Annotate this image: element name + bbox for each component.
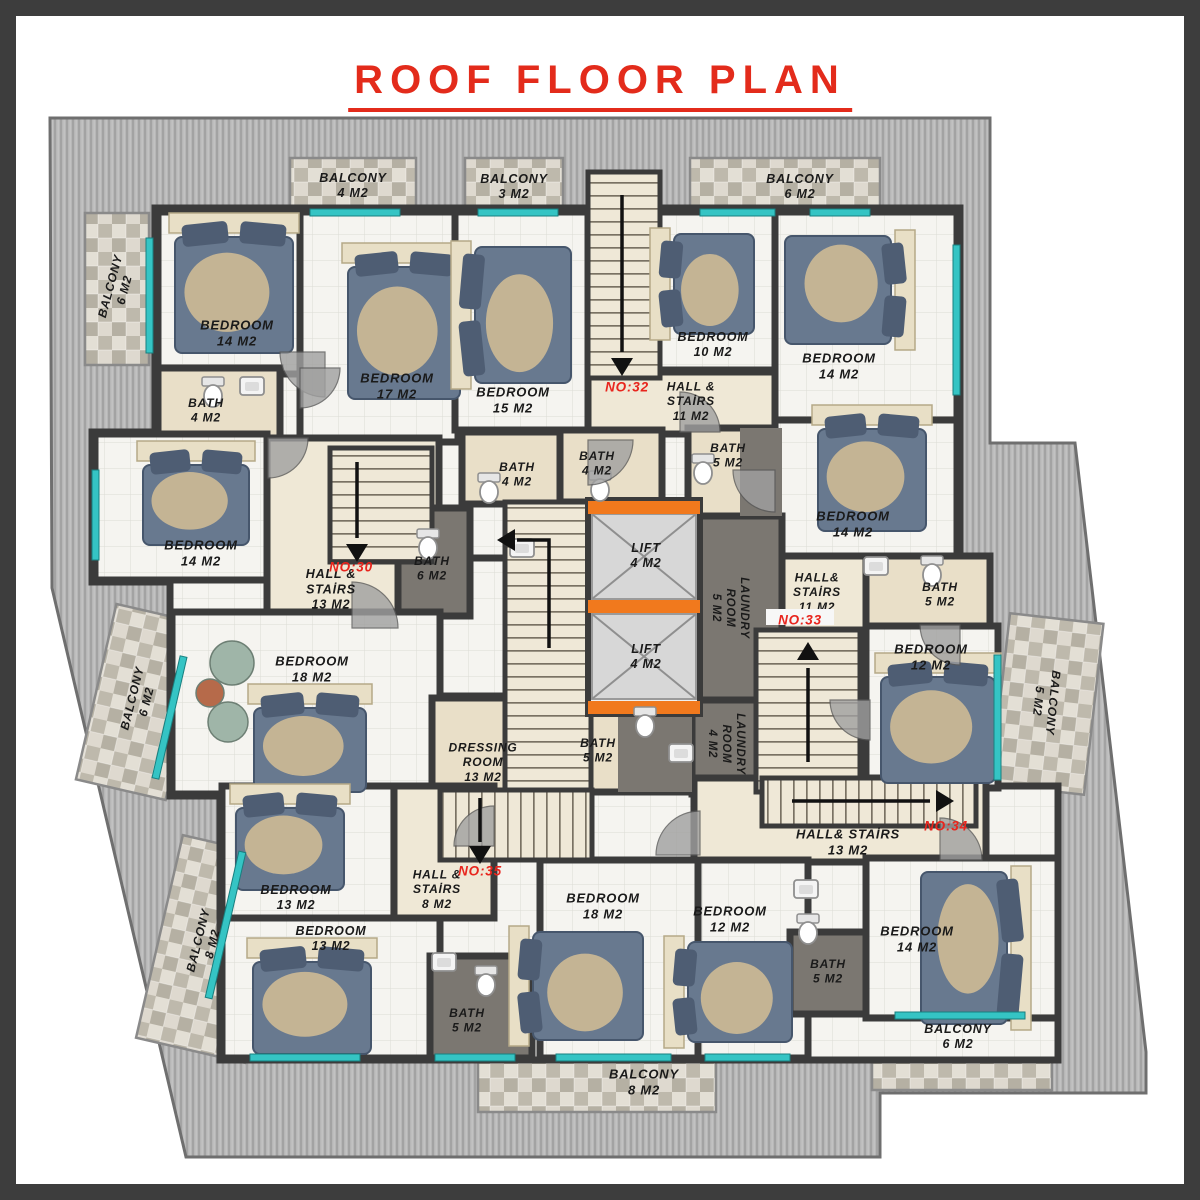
window: [250, 1054, 360, 1061]
bed: [451, 241, 571, 389]
window: [146, 238, 153, 353]
toilet-bowl: [477, 974, 495, 996]
bed: [650, 228, 754, 340]
window: [953, 245, 960, 395]
bed-pillow: [260, 692, 305, 718]
window: [478, 209, 558, 216]
unit-number-no34: NO:34: [924, 819, 968, 834]
bed: [137, 441, 255, 545]
bed-pillow: [672, 997, 698, 1036]
bed-pillow: [517, 991, 543, 1034]
stairs-top-center: [588, 172, 660, 378]
bed-blanket: [701, 962, 773, 1034]
label-bath-5-center-bottom: BATH5 M2: [580, 736, 616, 765]
sink-basin: [437, 958, 451, 967]
lift-door-bar: [588, 501, 700, 514]
label-lift: LIFT4 M2: [630, 642, 662, 671]
bed-blanket: [357, 287, 438, 376]
toilet-icon: [634, 707, 656, 737]
bed-pillow: [242, 792, 285, 818]
label-hall-stairs-11-no33: HALL&STAİRS11 M2: [793, 571, 841, 614]
toilet-icon: [475, 966, 497, 996]
label-bath-5-bottom-center: BATH5 M2: [810, 957, 846, 986]
sink-basin: [799, 885, 813, 894]
label-bath-5-top-right: BATH5 M2: [710, 441, 746, 470]
label-bath-4-center-1: BATH4 M2: [499, 460, 535, 489]
bed-pillow: [881, 295, 906, 338]
sink-basin: [515, 544, 529, 553]
decor-chair: [210, 641, 254, 685]
window: [705, 1054, 790, 1061]
bed-blanket: [937, 884, 998, 993]
bed-blanket: [151, 472, 227, 530]
toilet-bowl: [636, 715, 654, 737]
window: [994, 655, 1001, 780]
bed: [785, 230, 915, 350]
unit-number-no33: NO:33: [778, 613, 822, 628]
lift-door-bar: [588, 600, 700, 613]
roof-floor-plan-page: ROOF FLOOR PLAN BEDROOM14 M2BATH4 M2BEDR…: [0, 0, 1200, 1200]
decor-chair: [208, 702, 248, 742]
bed-blanket: [245, 816, 323, 875]
sink-basin: [869, 562, 883, 571]
unit-number-no32: NO:32: [605, 380, 649, 395]
bed: [664, 936, 792, 1048]
bed-blanket: [262, 972, 347, 1037]
label-bath-5-bottom-left: BATH5 M2: [449, 1006, 485, 1035]
bed-pillow: [409, 251, 454, 277]
toilet-icon: [797, 914, 819, 944]
decor-chair: [196, 679, 224, 707]
bed: [509, 926, 643, 1046]
window: [895, 1012, 1025, 1019]
toilet-icon: [478, 473, 500, 503]
bed-pillow: [315, 692, 360, 718]
sink-basin: [674, 749, 688, 758]
bed-pillow: [239, 221, 287, 247]
bed-blanket: [263, 716, 344, 776]
label-bath-4-center-2: BATH4 M2: [579, 449, 615, 478]
bed-pillow: [658, 289, 684, 328]
bed-pillow: [672, 948, 697, 987]
bed-pillow: [201, 449, 243, 474]
label-bath-6: BATH6 M2: [414, 554, 450, 583]
toilet-icon: [692, 454, 714, 484]
toilet-bowl: [480, 481, 498, 503]
bed-blanket: [805, 245, 878, 323]
unit-number-no30: NO:30: [329, 560, 373, 575]
bed-pillow: [658, 240, 683, 279]
bed-pillow: [877, 413, 920, 438]
window: [700, 209, 775, 216]
bed-pillow: [149, 449, 191, 475]
window: [435, 1054, 515, 1061]
bed-blanket: [890, 690, 972, 763]
bed-blanket: [681, 254, 739, 326]
unit-number-no35: NO:35: [458, 864, 502, 879]
window: [810, 209, 870, 216]
bed-pillow: [517, 938, 542, 981]
stairs-no30: [330, 448, 432, 562]
sink-basin: [245, 382, 259, 391]
toilet-bowl: [799, 922, 817, 944]
floor-plan-canvas: BEDROOM14 M2BATH4 M2BEDROOM17 M2BEDROOM1…: [0, 0, 1200, 1200]
window: [556, 1054, 671, 1061]
bed: [921, 866, 1031, 1030]
window: [92, 470, 99, 560]
bed-pillow: [295, 792, 338, 817]
bed-pillow: [354, 251, 399, 277]
window: [310, 209, 400, 216]
bed-blanket: [486, 274, 553, 372]
toilet-bowl: [694, 462, 712, 484]
label-hall-stairs-11-no32: HALL &STAİRS11 M2: [667, 380, 716, 423]
bed-blanket: [547, 954, 623, 1032]
bed-pillow: [824, 413, 867, 439]
page-title: ROOF FLOOR PLAN: [348, 58, 852, 112]
label-bath-5-right: BATH5 M2: [922, 580, 958, 609]
label-bath-4-top-left: BATH4 M2: [188, 396, 224, 425]
bed: [247, 938, 377, 1054]
bed-pillow: [881, 242, 907, 285]
label-lift: LIFT4 M2: [630, 541, 662, 570]
bed-blanket: [827, 441, 905, 512]
bed: [875, 653, 1001, 783]
bed: [230, 784, 350, 890]
bed: [248, 684, 372, 792]
